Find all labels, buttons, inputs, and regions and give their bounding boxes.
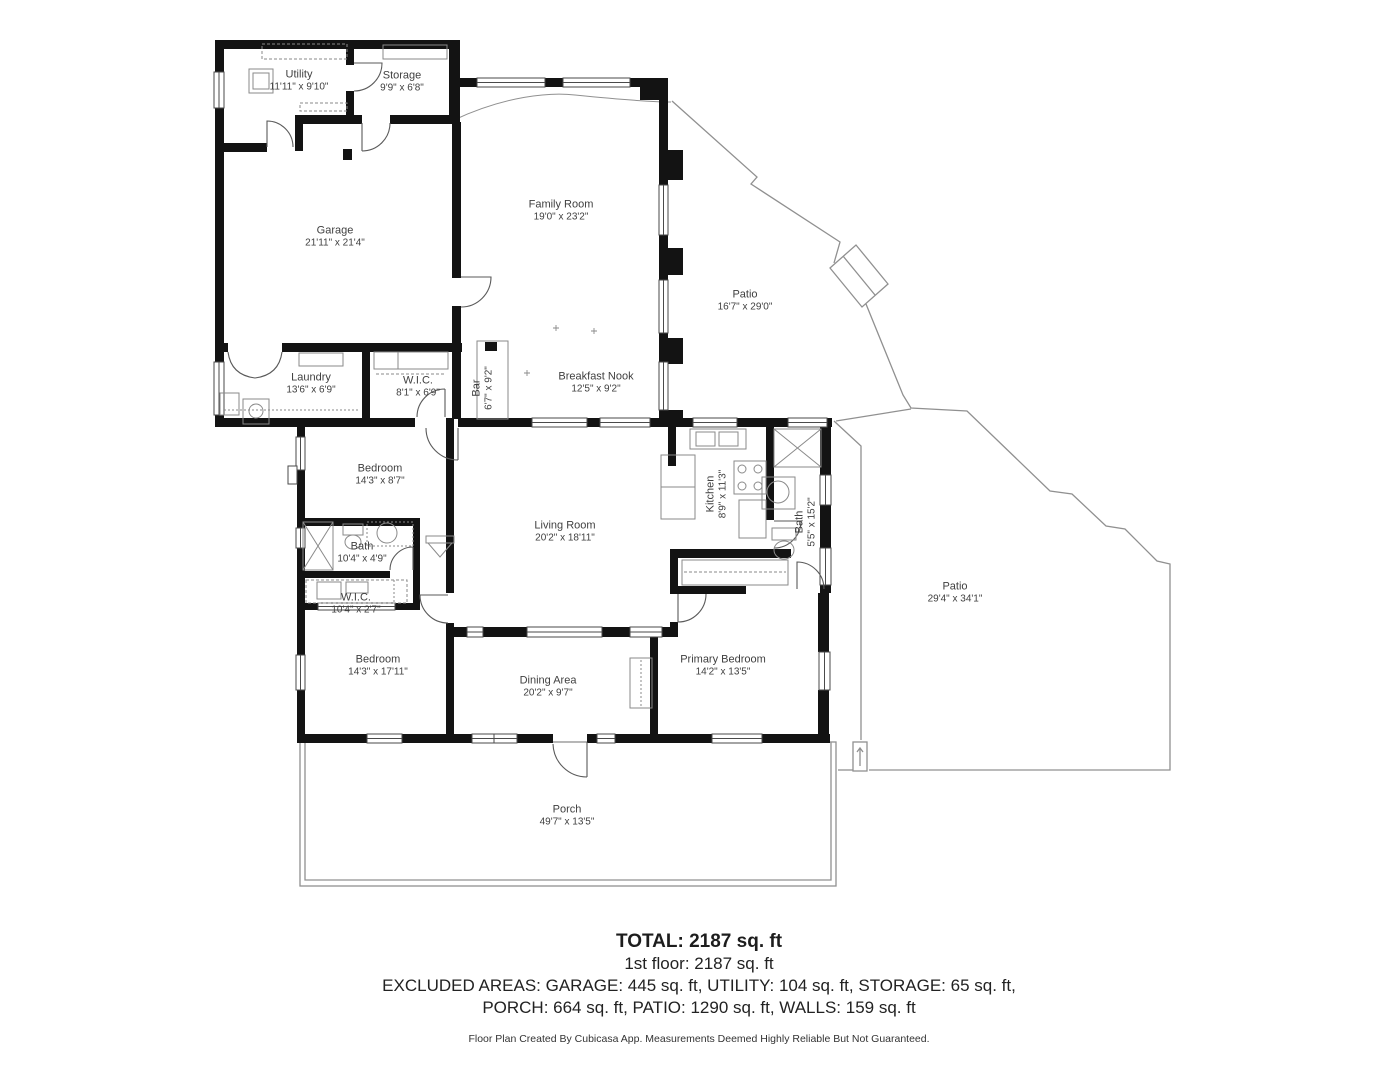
summary-block: TOTAL: 2187 sq. ft 1st floor: 2187 sq. f… [0,930,1398,1045]
floor-plan-page: Utility11'11" x 9'10" Storage9'9" x 6'8"… [0,0,1398,1080]
bar-sink [485,342,497,351]
excluded-areas-line1: EXCLUDED AREAS: GARAGE: 445 sq. ft, UTIL… [0,975,1398,997]
total-area-text: TOTAL: 2187 sq. ft [0,930,1398,953]
walls [215,40,832,743]
first-floor-area-text: 1st floor: 2187 sq. ft [0,953,1398,975]
floor-plan-drawing [0,0,1398,1080]
windows [214,72,831,743]
patio-porch-outlines [300,94,1170,886]
excluded-areas-line2: PORCH: 664 sq. ft, PATIO: 1290 sq. ft, W… [0,997,1398,1019]
disclaimer-text: Floor Plan Created By Cubicasa App. Meas… [0,1033,1398,1045]
